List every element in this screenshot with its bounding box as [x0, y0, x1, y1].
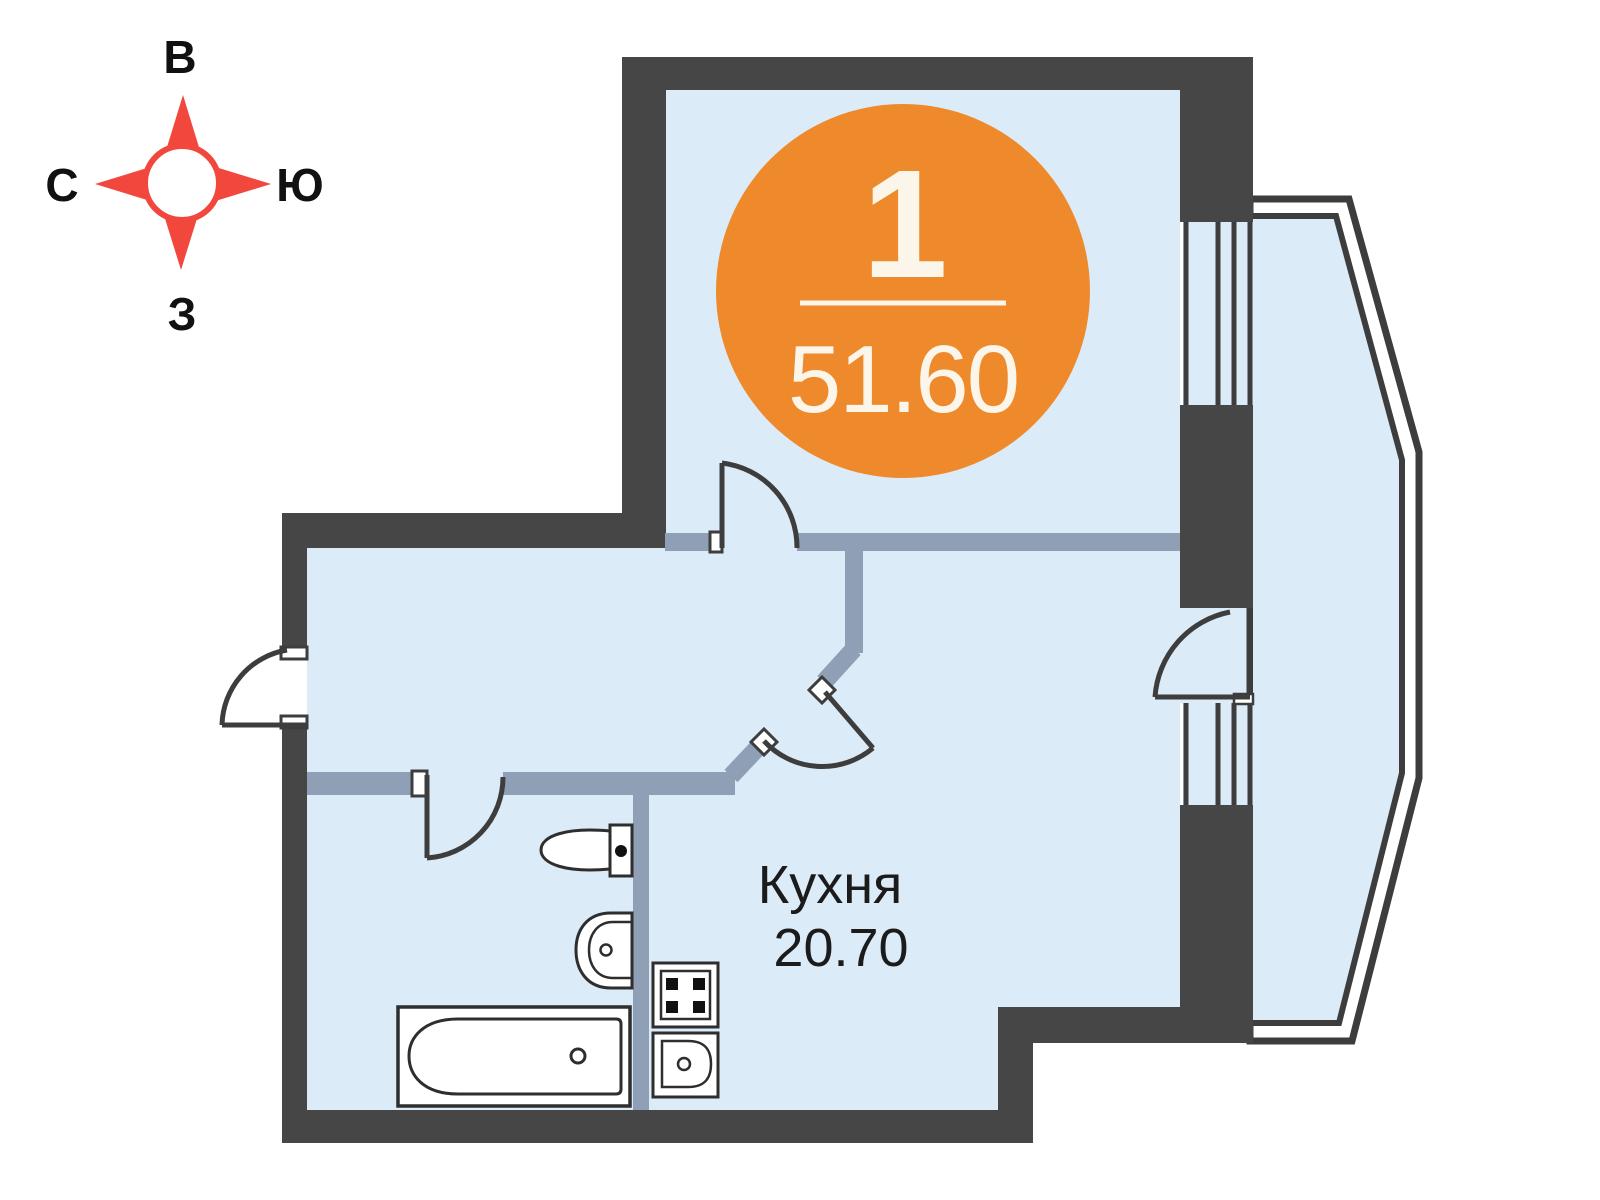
kitchen-area: 20.70: [773, 918, 908, 978]
wall-bottom: [282, 1110, 1033, 1143]
kitchen-label: Кухня: [758, 855, 903, 915]
compass-bottom-label: З: [168, 288, 197, 340]
wall-left-upper: [282, 513, 307, 647]
entrance-door-arc: [222, 650, 287, 725]
wall-hall-top: [282, 513, 666, 548]
balcony-door-threshold: [1180, 608, 1253, 703]
wall-top: [622, 57, 1253, 90]
window-living-room-icon: [1183, 222, 1253, 405]
wall-livingroom-left: [622, 57, 666, 548]
floor-plan: Кухня 20.70 1 51.60 В С Ю З: [0, 0, 1600, 1200]
badge-room-count: 1: [862, 138, 948, 310]
entrance-door: [222, 647, 307, 728]
partition-bath-left: [307, 772, 412, 795]
stove-icon: [653, 963, 718, 1027]
partition-livingroom-left: [665, 533, 710, 551]
area-badge: 1 51.60: [716, 104, 1090, 478]
wall-right-upper: [1180, 57, 1253, 222]
window-kitchen-icon: [1183, 703, 1253, 805]
badge-total-area: 51.60: [788, 326, 1018, 433]
partition-bath-right: [503, 772, 735, 795]
compass-left-label: С: [45, 159, 78, 211]
bathtub-icon: [398, 1007, 630, 1106]
partition-hall-kitchen-vertical: [845, 551, 863, 653]
compass-rose-icon: В С Ю З: [45, 31, 323, 340]
compass-right-label: Ю: [276, 159, 323, 211]
wall-right-middle: [1180, 405, 1253, 608]
kitchen-sink-icon: [653, 1033, 718, 1097]
compass-top-label: В: [163, 31, 196, 83]
floor-plan-page: Кухня 20.70 1 51.60 В С Ю З: [0, 0, 1600, 1200]
wall-left-lower: [282, 728, 307, 1143]
wall-bottom-right: [998, 1007, 1253, 1043]
washbasin-icon: [576, 913, 632, 988]
partition-bath-kitchen-divider: [633, 795, 649, 1110]
partition-livingroom-right: [797, 533, 1180, 551]
